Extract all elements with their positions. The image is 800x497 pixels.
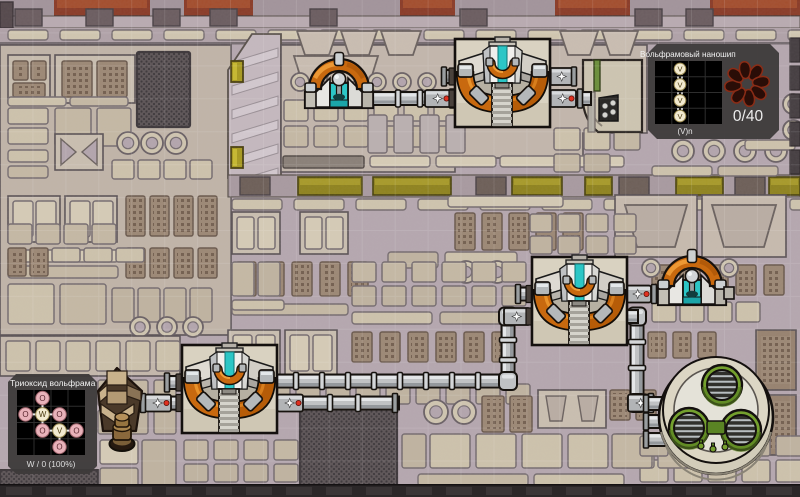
svg-text:Вольфрамовый наношип: Вольфрамовый наношип — [640, 50, 736, 59]
svg-text:V: V — [677, 96, 682, 105]
svg-text:O: O — [22, 410, 28, 419]
svg-text:V: V — [677, 112, 682, 121]
svg-text:W / 0 (100%): W / 0 (100%) — [27, 459, 76, 469]
svg-text:(V)n: (V)n — [677, 127, 692, 136]
svg-text:O: O — [56, 410, 62, 419]
svg-text:O: O — [39, 394, 45, 403]
svg-text:V: V — [677, 65, 682, 74]
svg-text:W: W — [39, 410, 47, 419]
svg-text:O: O — [73, 426, 79, 435]
svg-text:Триоксид вольфрама: Триоксид вольфрама — [10, 378, 96, 388]
svg-text:O: O — [56, 443, 62, 452]
svg-text:V: V — [57, 426, 63, 435]
svg-text:O: O — [39, 426, 45, 435]
svg-text:0/40: 0/40 — [733, 108, 764, 125]
svg-text:V: V — [677, 80, 682, 89]
